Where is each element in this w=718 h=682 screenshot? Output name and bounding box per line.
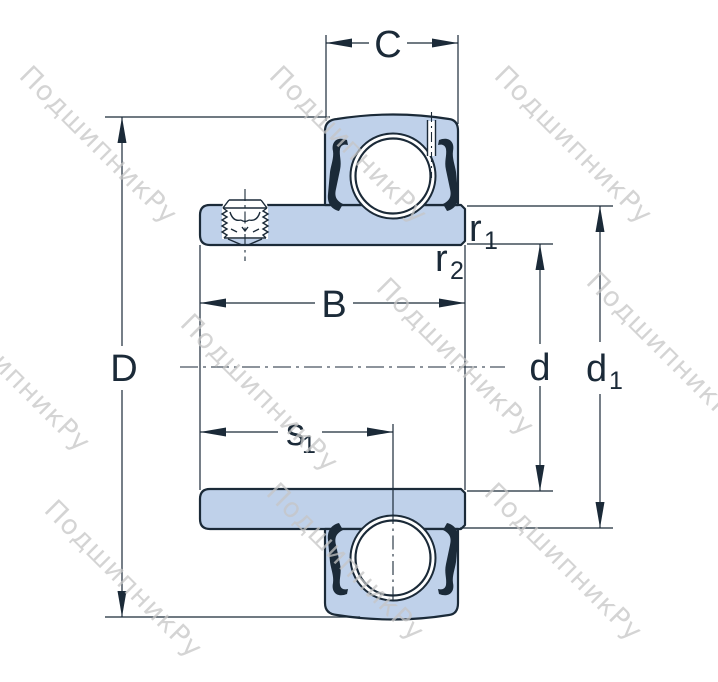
label-r1: r	[469, 208, 482, 250]
dimension-B: B	[200, 284, 465, 326]
arrow-down	[118, 591, 127, 617]
arrow-down	[536, 465, 545, 491]
arrow-right	[432, 39, 458, 48]
label-d1: d	[586, 348, 607, 390]
bearing-cross-section-drawing: C D B s 1	[0, 0, 718, 682]
bearing-drawing-canvas: C D B s 1	[0, 0, 718, 682]
arrow-up	[536, 244, 545, 270]
label-r2: r	[435, 238, 448, 280]
label-D: D	[110, 348, 137, 390]
arrow-right	[439, 299, 465, 308]
dimension-C: C	[326, 24, 458, 124]
label-s1-sub: 1	[302, 431, 316, 459]
label-r1-sub: 1	[484, 227, 498, 255]
label-C: C	[374, 24, 401, 66]
bearing-bottom-half	[200, 489, 465, 620]
label-B: B	[321, 284, 346, 326]
label-d: d	[529, 347, 550, 389]
arrow-up	[596, 206, 605, 232]
arrow-left	[326, 39, 352, 48]
label-d1-sub: 1	[609, 367, 623, 395]
dimension-s1: s 1	[200, 412, 393, 459]
arrow-left	[200, 299, 226, 308]
arrow-left	[200, 428, 226, 437]
label-r1-group: r 1	[469, 208, 498, 255]
dimension-d: d	[467, 244, 553, 491]
arrow-up	[118, 117, 127, 143]
arrow-right	[367, 428, 393, 437]
arrow-down	[596, 502, 605, 528]
label-r2-sub: 2	[450, 257, 464, 285]
